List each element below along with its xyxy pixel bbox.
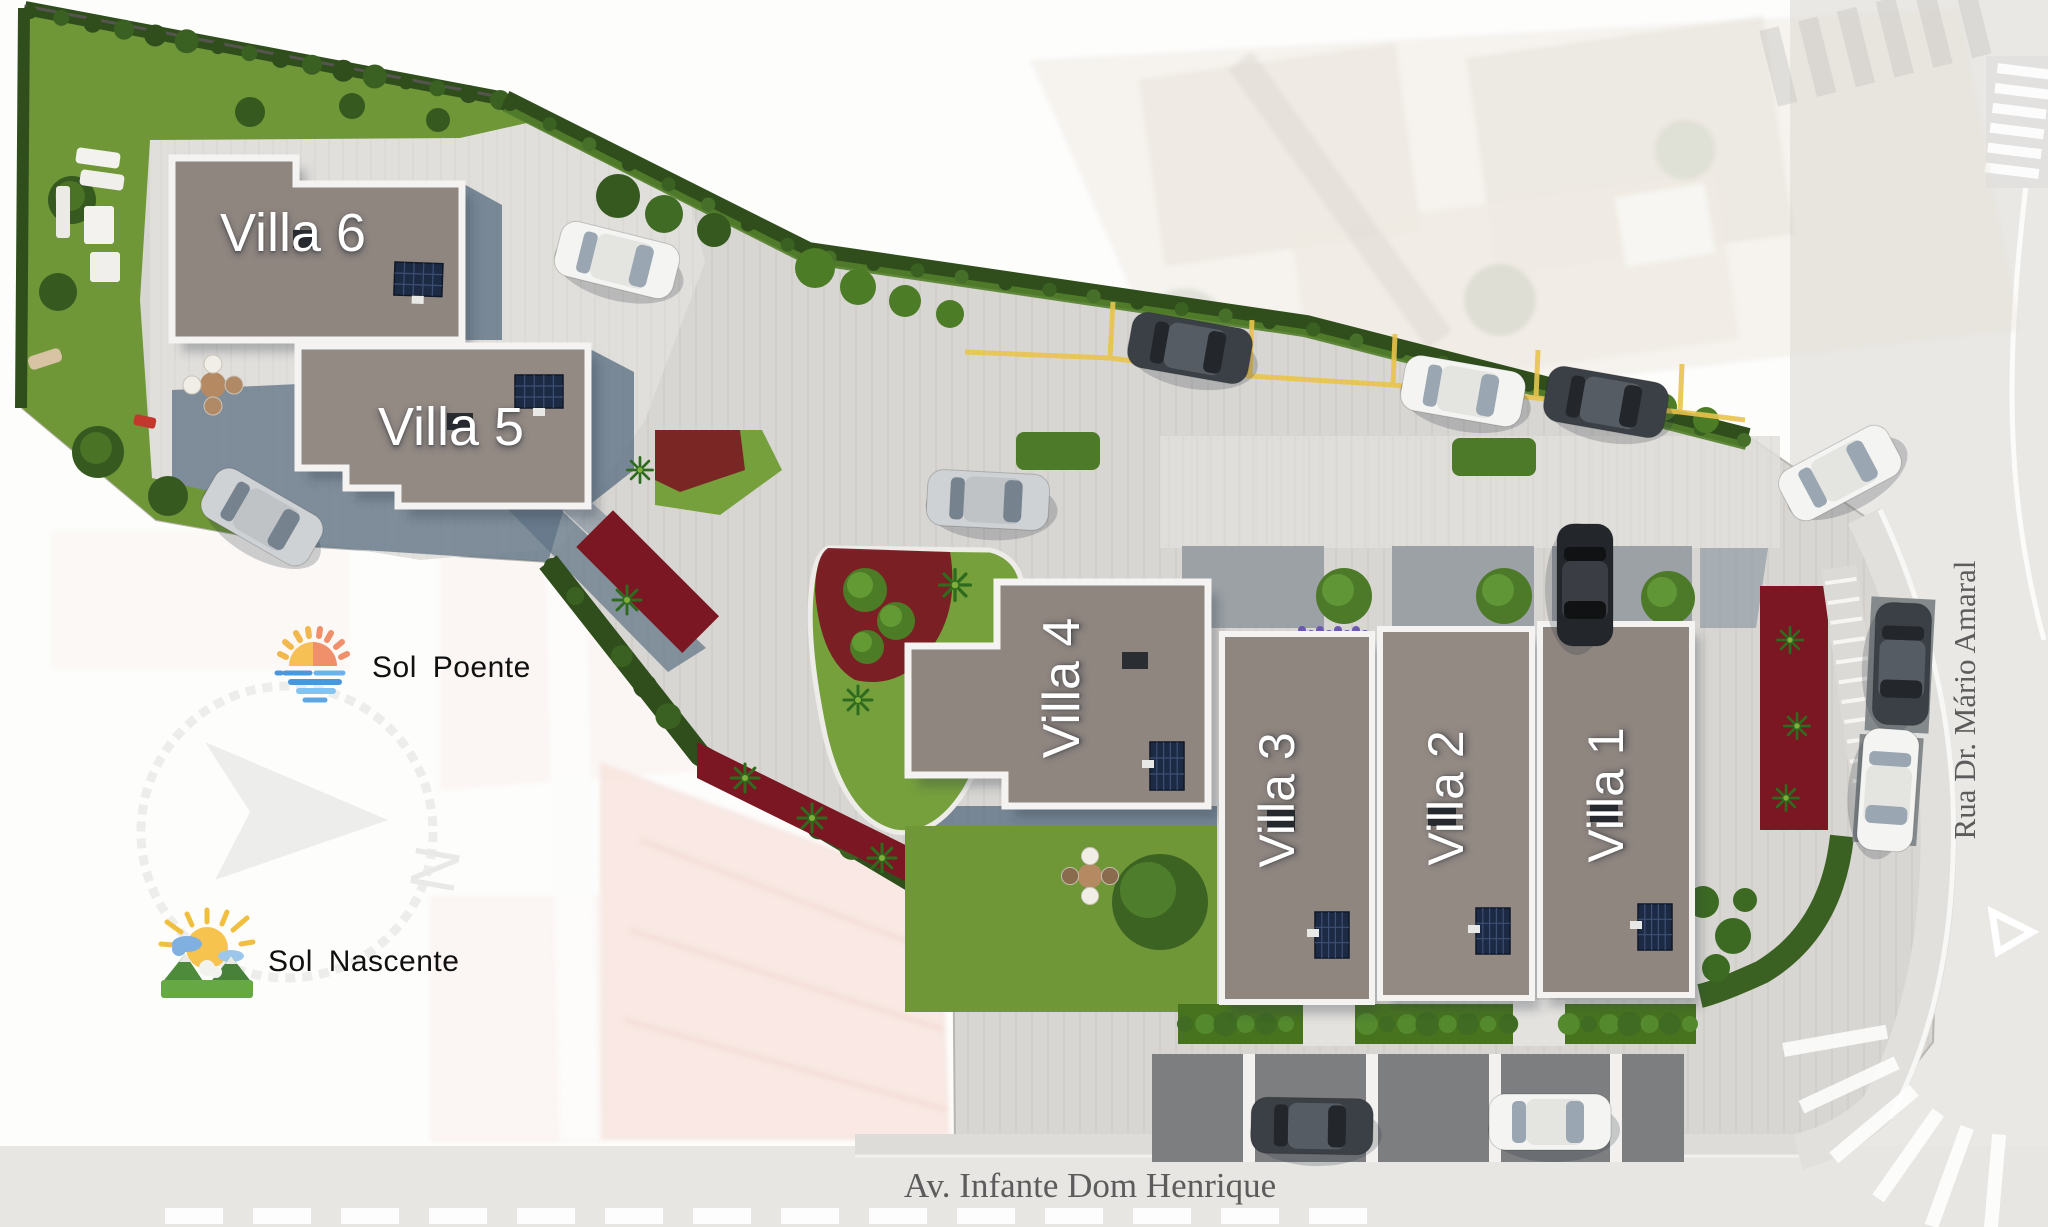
roof-vent: [293, 230, 315, 248]
roof-vent: [1122, 652, 1148, 669]
flower-bed: [1016, 432, 1100, 470]
compass-north-arrow-icon: N: [141, 686, 474, 978]
villa-2-roof: [1380, 629, 1540, 1010]
site-plan: N: [0, 0, 2048, 1227]
villa-1-roof: [1540, 624, 1700, 1007]
villa-6-roof: [172, 158, 472, 352]
car: [1545, 523, 1613, 655]
roof-vent: [1267, 810, 1295, 830]
roof-vent: [1590, 802, 1618, 822]
roof-vent: [447, 413, 473, 430]
villa-4-garden: [905, 826, 1217, 1012]
roof-vent: [1428, 806, 1456, 826]
site-plan-render: N: [0, 0, 2048, 1227]
compass-north-label: N: [395, 840, 474, 898]
car: [1488, 1094, 1620, 1162]
flower-bed: [1452, 438, 1536, 476]
villa-3-roof: [1222, 634, 1380, 1014]
